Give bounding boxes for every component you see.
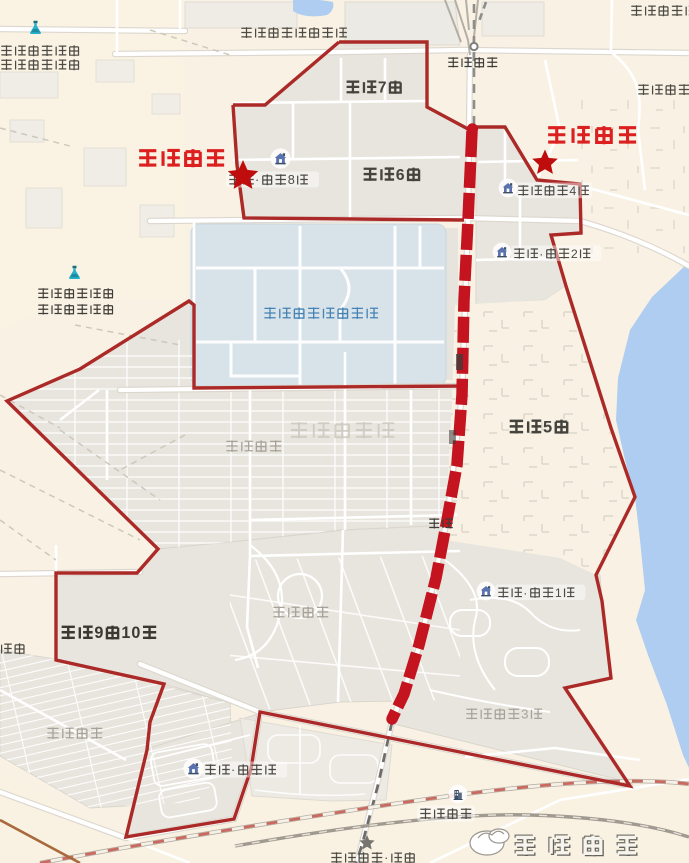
svg-text:1: 1 [121,624,130,642]
svg-text:·: · [231,762,235,777]
svg-text:3: 3 [521,707,528,722]
svg-text:6: 6 [396,167,405,184]
svg-text:·: · [255,172,259,187]
svg-text:7: 7 [378,80,387,97]
svg-text:·: · [384,850,388,863]
svg-text:5: 5 [543,418,552,436]
svg-text:·: · [539,247,543,261]
svg-text:1: 1 [555,586,562,600]
svg-text:4: 4 [569,184,576,198]
svg-text:8: 8 [288,172,295,187]
svg-text:9: 9 [94,624,103,642]
svg-text:·: · [523,586,527,600]
svg-text:0: 0 [131,624,140,642]
svg-text:2: 2 [571,247,578,261]
